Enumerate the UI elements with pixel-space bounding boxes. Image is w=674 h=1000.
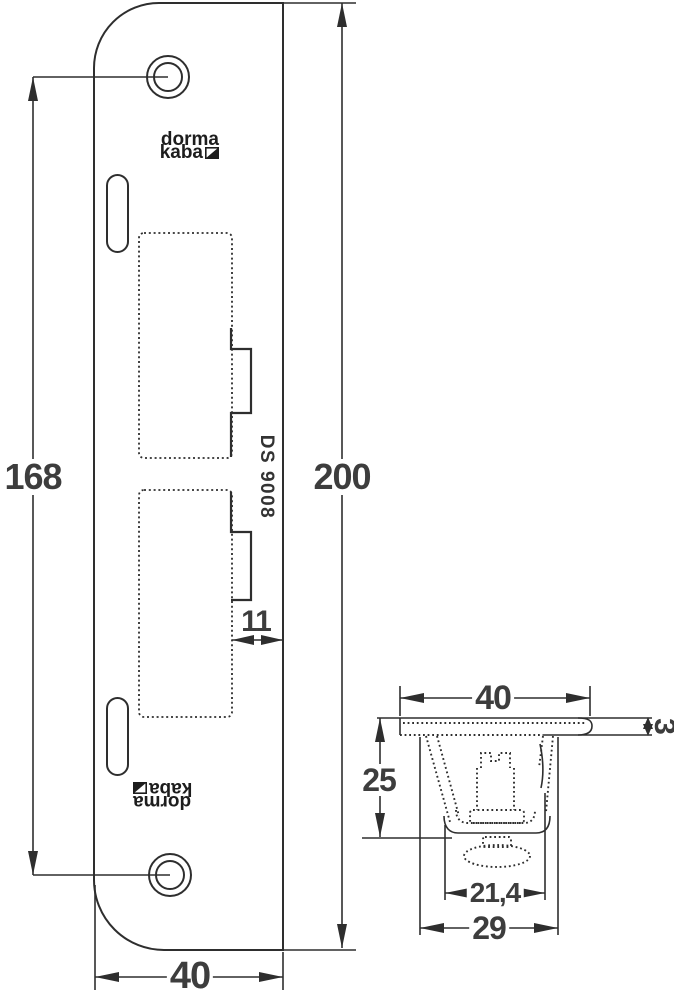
brand-word-kaba: kaba (149, 782, 192, 795)
dim-168-label: 168 (1, 459, 64, 495)
product-code: DS 9008 (255, 435, 277, 519)
dim-40-front-label: 40 (167, 957, 213, 995)
dim-40-side-label: 40 (472, 681, 514, 715)
brand-word-kaba: kaba (160, 146, 203, 159)
side-view-plate-bar (377, 718, 652, 735)
side-view-strike-box (426, 736, 553, 833)
dormakaba-flag-icon (133, 783, 147, 795)
dormakaba-flag-icon (205, 147, 219, 159)
dim-11-label: 11 (238, 607, 274, 637)
drawing-linework (0, 0, 674, 1000)
technical-drawing-canvas: 168 200 11 40 40 3 25 21,4 29 DS 9008 do… (0, 0, 674, 1000)
dim-25-label: 25 (359, 764, 399, 796)
brand-logo-bottom: dorma kaba (133, 782, 207, 808)
dim-21-4-label: 21,4 (467, 879, 524, 907)
dim-3-label: 3 (649, 715, 674, 737)
side-view-clip-detail (464, 753, 530, 867)
dim-29-label: 29 (469, 912, 509, 944)
dim-200-label: 200 (310, 459, 373, 495)
brand-logo-top: dorma kaba (145, 133, 219, 159)
